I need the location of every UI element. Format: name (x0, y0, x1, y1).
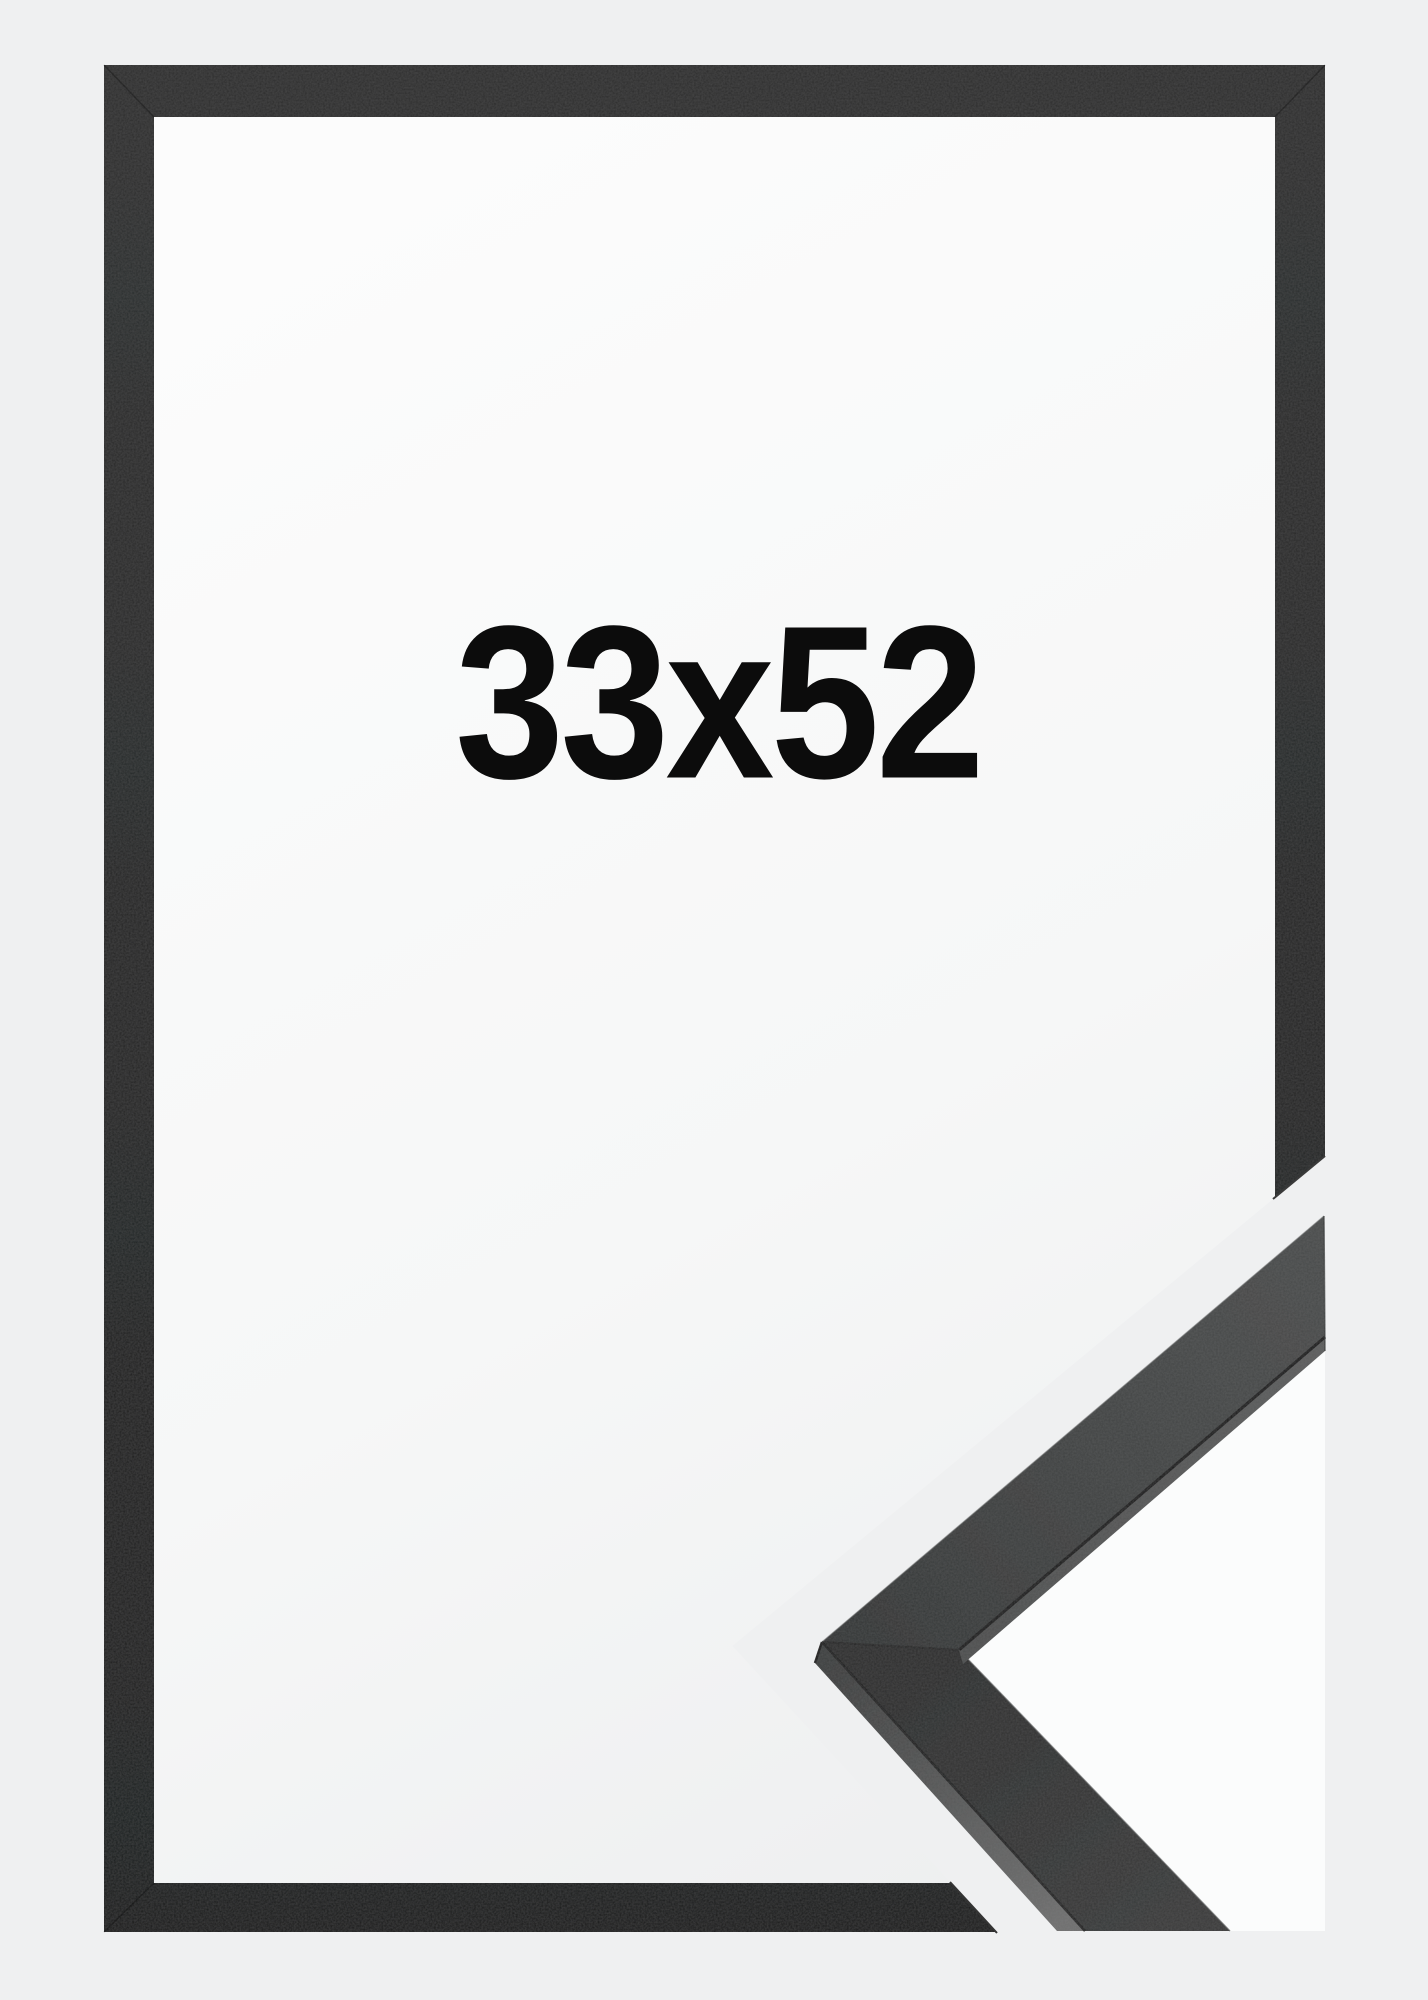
size-label: 33x52 (455, 594, 981, 812)
product-image: 33x52 (0, 0, 1428, 2000)
frame-graphic (0, 0, 1428, 2000)
